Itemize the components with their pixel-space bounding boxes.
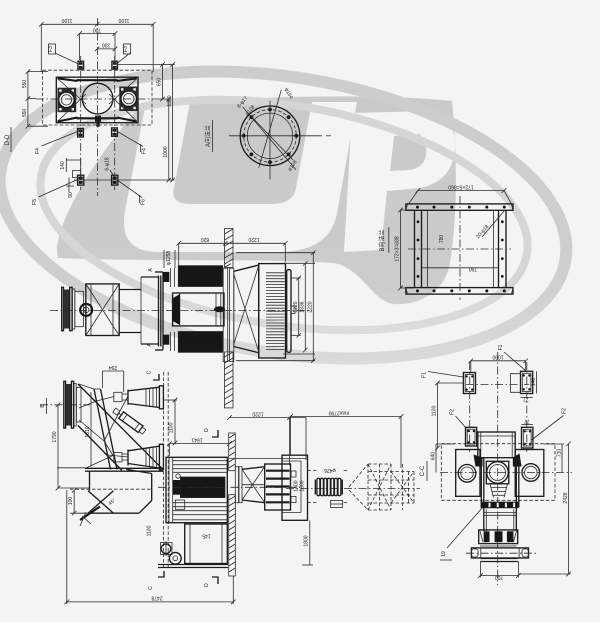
svg-text:100: 100 <box>68 497 74 506</box>
svg-text:1100: 1100 <box>118 17 129 23</box>
svg-text:F3: F3 <box>48 46 54 52</box>
svg-text:6-φ18: 6-φ18 <box>105 157 111 170</box>
svg-text:145: 145 <box>202 533 211 539</box>
svg-text:1000: 1000 <box>163 146 169 157</box>
svg-text:1600: 1600 <box>300 480 306 491</box>
svg-text:2478: 2478 <box>151 595 162 601</box>
svg-text:C: C <box>148 586 154 590</box>
svg-text:790: 790 <box>469 266 478 272</box>
svg-text:1836: 1836 <box>300 301 306 312</box>
svg-text:1100: 1100 <box>61 17 72 23</box>
svg-text:F5: F5 <box>32 199 38 205</box>
svg-text:φ426: φ426 <box>324 467 336 473</box>
svg-text:550: 550 <box>22 80 28 89</box>
svg-text:1800: 1800 <box>304 535 310 546</box>
svg-text:1100: 1100 <box>147 525 153 536</box>
svg-text:D: D <box>204 428 210 432</box>
svg-text:F6: F6 <box>141 199 147 205</box>
svg-text:140: 140 <box>60 161 66 170</box>
svg-text:F3: F3 <box>123 46 129 52</box>
svg-text:77: 77 <box>523 396 529 402</box>
svg-text:1100: 1100 <box>432 405 438 416</box>
svg-text:700: 700 <box>495 574 504 580</box>
svg-text:1220: 1220 <box>293 301 299 312</box>
svg-text:1220: 1220 <box>252 411 263 417</box>
svg-text:1790: 1790 <box>52 431 58 442</box>
svg-text:1810: 1810 <box>85 426 91 437</box>
svg-text:790: 790 <box>439 235 445 244</box>
svg-text:2220: 2220 <box>308 301 314 312</box>
svg-text:D-D: D-D <box>5 134 11 145</box>
svg-text:172×5=860: 172×5=860 <box>448 183 474 189</box>
svg-text:640: 640 <box>430 452 436 461</box>
svg-text:19: 19 <box>441 551 447 557</box>
svg-text:C-C: C-C <box>420 465 426 476</box>
svg-text:140: 140 <box>531 378 537 387</box>
svg-text:max2790: max2790 <box>329 410 350 416</box>
svg-text:1641: 1641 <box>191 437 202 443</box>
svg-text:2428: 2428 <box>563 492 569 503</box>
svg-text:330: 330 <box>102 42 111 48</box>
svg-text:F1: F1 <box>498 344 504 350</box>
svg-text:1100: 1100 <box>169 422 175 433</box>
svg-text:F4: F4 <box>35 148 41 154</box>
svg-text:F4: F4 <box>142 148 148 154</box>
svg-text:φ1258: φ1258 <box>166 251 172 266</box>
svg-text:D: D <box>204 583 210 587</box>
svg-text:1300: 1300 <box>167 95 173 106</box>
svg-text:F2: F2 <box>562 408 568 414</box>
svg-text:650: 650 <box>157 78 163 87</box>
svg-text:C: C <box>147 370 153 374</box>
svg-text:1220: 1220 <box>248 236 259 242</box>
svg-text:A向法兰: A向法兰 <box>204 125 212 147</box>
svg-text:F2: F2 <box>450 409 456 415</box>
svg-text:B向法兰: B向法兰 <box>378 229 386 251</box>
svg-text:90: 90 <box>68 192 74 198</box>
svg-text:710: 710 <box>556 449 562 458</box>
svg-text:F1: F1 <box>422 372 428 378</box>
svg-text:820: 820 <box>201 236 210 242</box>
svg-text:294: 294 <box>109 364 118 370</box>
svg-text:550: 550 <box>22 109 28 118</box>
svg-text:172×3=688: 172×3=688 <box>395 236 401 262</box>
svg-text:700: 700 <box>93 26 102 32</box>
